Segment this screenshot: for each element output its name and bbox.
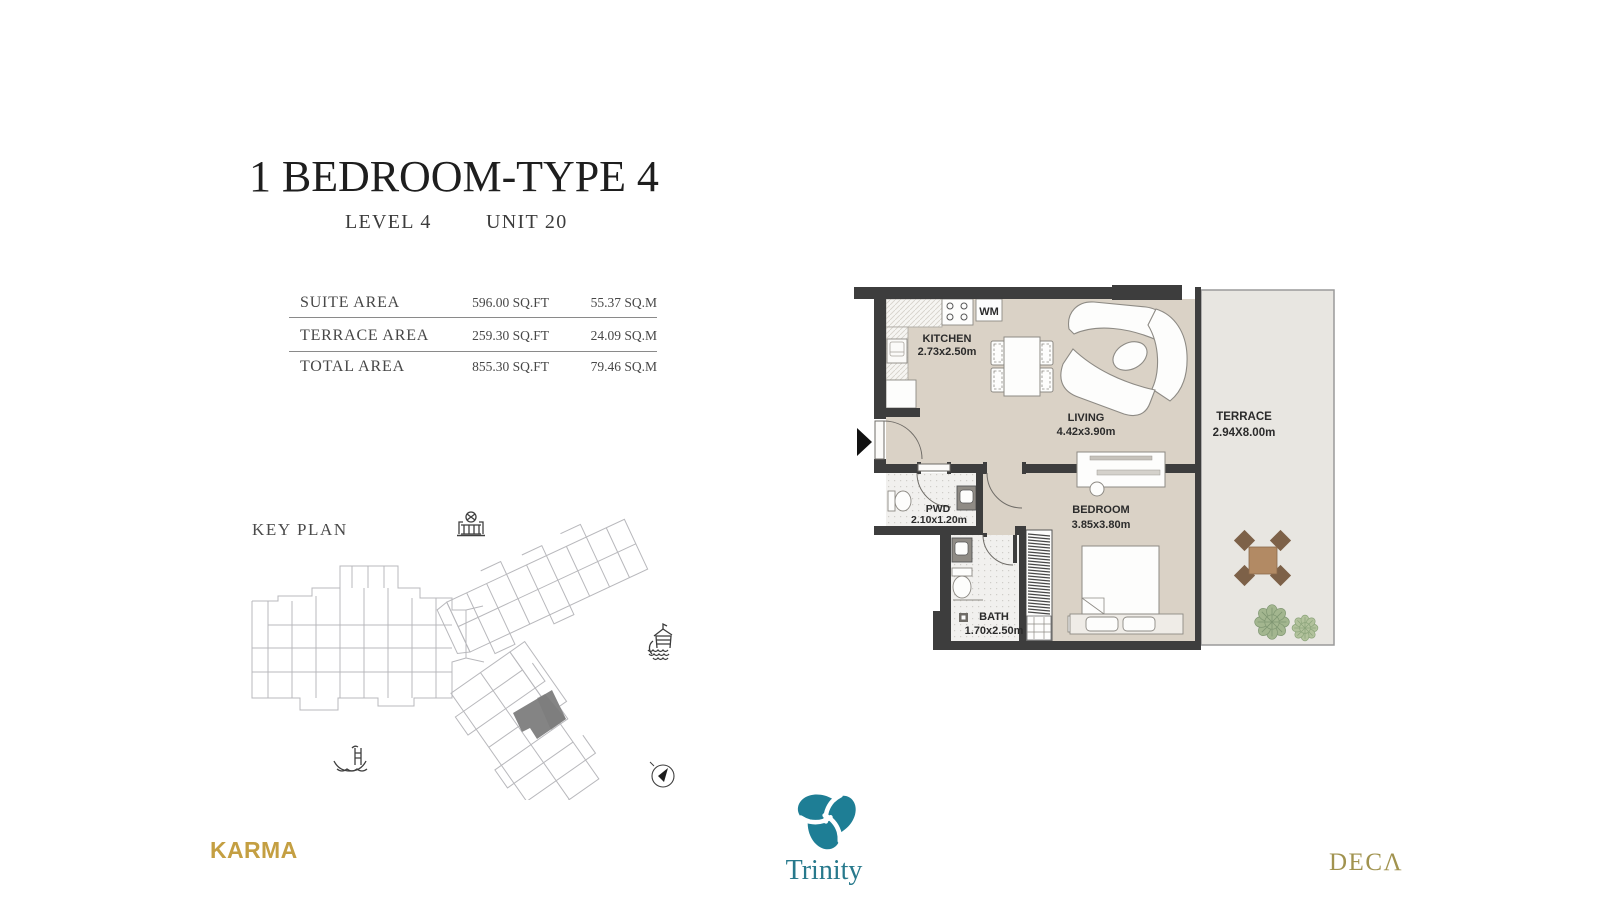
svg-text:2.73x2.50m: 2.73x2.50m <box>918 346 977 358</box>
svg-text:1.70x2.50m: 1.70x2.50m <box>965 625 1024 637</box>
svg-text:3.85x3.80m: 3.85x3.80m <box>1072 519 1131 531</box>
svg-text:2.10x1.20m: 2.10x1.20m <box>911 514 967 526</box>
svg-text:4.42x3.90m: 4.42x3.90m <box>1057 426 1116 438</box>
svg-text:KITCHEN: KITCHEN <box>923 333 972 345</box>
svg-text:2.94X8.00m: 2.94X8.00m <box>1213 427 1276 439</box>
svg-text:Trinity: Trinity <box>786 855 863 886</box>
svg-text:LIVING: LIVING <box>1068 412 1105 424</box>
svg-text:BATH: BATH <box>979 611 1009 623</box>
svg-text:BEDROOM: BEDROOM <box>1072 504 1129 516</box>
svg-text:WM: WM <box>979 306 999 318</box>
svg-text:TERRACE: TERRACE <box>1216 411 1272 423</box>
